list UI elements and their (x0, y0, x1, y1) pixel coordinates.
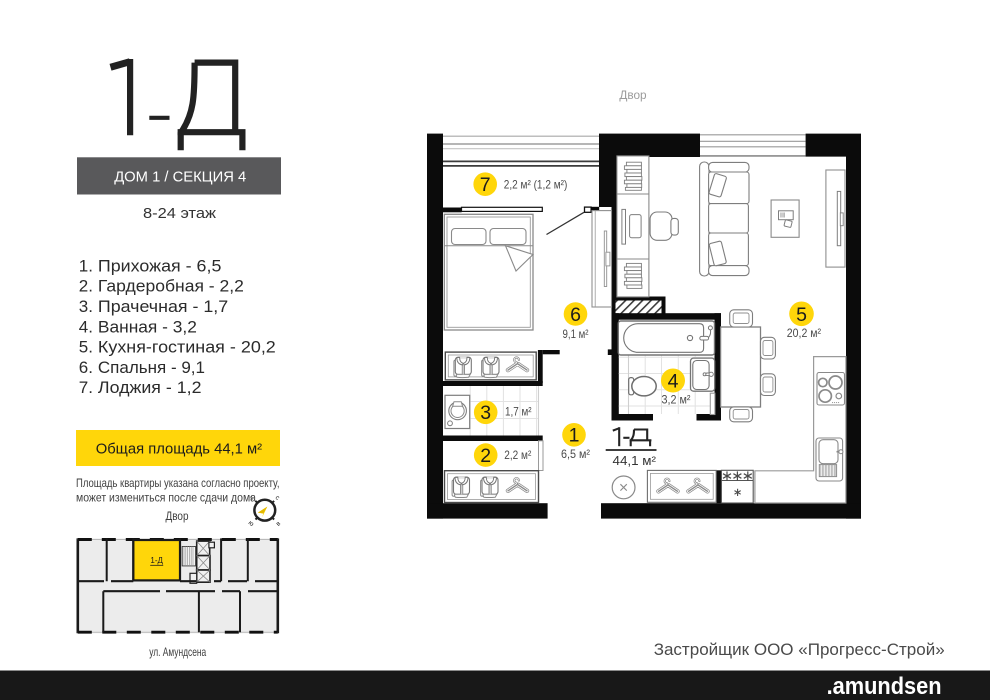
svg-text:1,7 м²: 1,7 м² (505, 405, 532, 419)
svg-text:9,1 м²: 9,1 м² (563, 327, 589, 341)
svg-text:2,2 м²: 2,2 м² (504, 448, 531, 462)
svg-text:1-Д: 1-Д (150, 556, 163, 565)
svg-text:Спальня - 9,1: Спальня - 9,1 (98, 358, 205, 377)
svg-text:Кухня-гостиная - 20,2: Кухня-гостиная - 20,2 (98, 338, 276, 357)
svg-text:Прихожая - 6,5: Прихожая - 6,5 (98, 256, 221, 275)
svg-text:2: 2 (480, 445, 491, 467)
svg-text:может измениться после сдачи д: может измениться после сдачи дома (76, 491, 256, 504)
svg-text:3.: 3. (79, 297, 93, 316)
svg-text:6: 6 (570, 304, 581, 326)
svg-text:4: 4 (668, 371, 679, 393)
svg-text:Застройщик ООО «Прогресс-Строй: Застройщик ООО «Прогресс-Строй» (654, 640, 945, 659)
svg-text:44,1 м²: 44,1 м² (613, 453, 657, 468)
svg-text:3,2 м²: 3,2 м² (662, 393, 691, 407)
svg-text:5: 5 (796, 304, 807, 326)
svg-text:ДОМ 1 / СЕКЦИЯ 4: ДОМ 1 / СЕКЦИЯ 4 (114, 169, 246, 186)
svg-text:4.: 4. (79, 317, 93, 336)
svg-text:Гардеробная - 2,2: Гардеробная - 2,2 (98, 277, 244, 296)
svg-text:1.: 1. (79, 256, 93, 275)
svg-text:Двор: Двор (166, 509, 189, 523)
svg-text:Прачечная - 1,7: Прачечная - 1,7 (98, 297, 228, 316)
svg-text:1: 1 (569, 425, 580, 447)
svg-text:7: 7 (480, 174, 491, 196)
svg-text:20,2 м²: 20,2 м² (787, 326, 821, 340)
svg-text:.amundsen: .amundsen (827, 673, 942, 700)
svg-text:5.: 5. (79, 338, 93, 357)
svg-text:ул. Амундсена: ул. Амундсена (149, 646, 206, 659)
svg-text:Площадь квартиры указана согла: Площадь квартиры указана согласно проект… (76, 477, 280, 490)
svg-text:6,5 м²: 6,5 м² (561, 447, 590, 461)
svg-text:3: 3 (480, 402, 491, 424)
svg-text:2,2 м² (1,2 м²): 2,2 м² (1,2 м²) (504, 178, 568, 192)
svg-text:Двор: Двор (619, 88, 647, 102)
svg-text:7.: 7. (79, 378, 93, 397)
svg-text:Ванная - 3,2: Ванная - 3,2 (98, 317, 197, 336)
svg-text:2.: 2. (79, 277, 93, 296)
svg-text:6.: 6. (79, 358, 93, 377)
svg-text:Лоджия - 1,2: Лоджия - 1,2 (98, 378, 202, 397)
svg-text:8-24 этаж: 8-24 этаж (143, 206, 216, 222)
svg-text:Общая площадь 44,1 м²: Общая площадь 44,1 м² (96, 442, 262, 458)
